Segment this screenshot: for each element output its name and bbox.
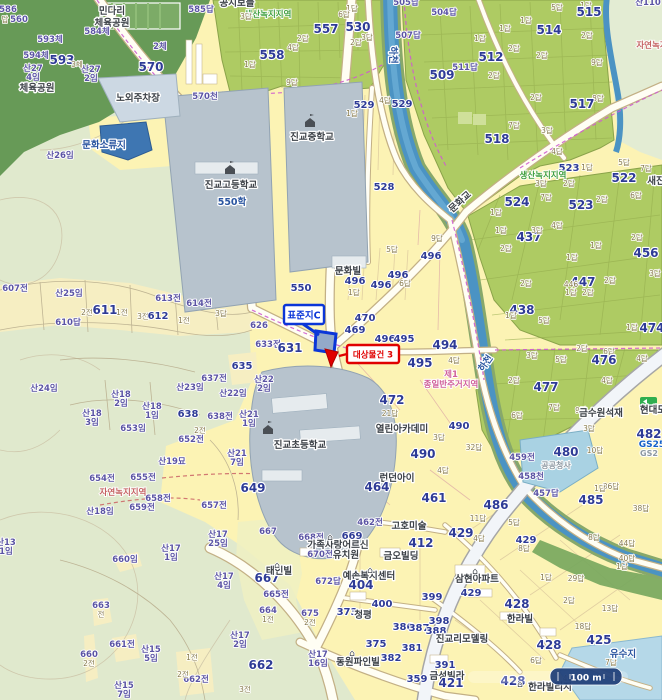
map-label: 458천	[518, 471, 544, 482]
map-label: 391	[435, 660, 456, 671]
map-label: 2전	[304, 617, 316, 627]
map-label: 민다리	[99, 5, 125, 17]
map-label: 4임	[26, 72, 40, 83]
map-label: 2답	[631, 232, 643, 242]
map-label: 585답	[188, 4, 214, 15]
map-label: 529	[392, 99, 413, 110]
map-label: 1답	[540, 572, 552, 582]
map-label: 613전	[155, 293, 181, 304]
map-label: 29답	[568, 573, 585, 583]
map-label: 9답	[431, 233, 443, 243]
map-label: 한라빌	[507, 613, 533, 625]
map-label: 고호미술	[392, 520, 427, 532]
map-label: 13답	[602, 603, 619, 613]
map-label: 3답	[361, 32, 373, 42]
map-label: 5임	[144, 653, 158, 664]
map-label: 1답	[566, 252, 578, 262]
map-label: 6답	[630, 190, 642, 200]
map-label: 495	[407, 356, 432, 370]
map-label: 472	[379, 393, 404, 407]
map-label: 399	[422, 592, 443, 603]
map-label: 6답	[399, 278, 411, 288]
map-label: 18답	[575, 621, 592, 631]
map-label: 2답	[297, 33, 309, 43]
map-label: 2답	[488, 70, 500, 80]
map-label: 자연녹지	[636, 40, 662, 51]
map-label: 496	[375, 334, 396, 345]
map-label: 2전	[83, 658, 95, 668]
map-label: 유치원	[333, 549, 359, 561]
map-label: 4답	[636, 353, 648, 363]
map-label: 670전	[307, 549, 333, 560]
map-label: 6답	[338, 9, 350, 19]
map-label: 462전	[357, 517, 383, 528]
map-label: 496	[345, 276, 366, 287]
map-label: 11답	[470, 513, 487, 523]
map-label: 2임	[114, 398, 128, 409]
map-label: 4답	[379, 95, 391, 105]
map-label: 열린아카데미	[376, 423, 428, 435]
map-label: 517	[569, 97, 594, 111]
map-label: 4답	[287, 42, 299, 52]
map-label: 522	[611, 171, 636, 185]
map-label: 2체	[153, 41, 167, 52]
map-label: 1답	[348, 287, 360, 297]
map-label: 496	[421, 251, 442, 262]
map-label: 1전	[186, 652, 198, 662]
map-label: 428	[536, 638, 561, 652]
map-label: 509	[429, 68, 454, 82]
map-label: 5답	[386, 244, 398, 254]
map-label: 금수원석재	[579, 407, 623, 419]
map-label: 469	[345, 325, 366, 336]
map-label: 7답	[540, 192, 552, 202]
map-label: 산26임	[46, 150, 73, 161]
map-label: 429	[448, 526, 473, 540]
map-label: 산110	[635, 0, 661, 8]
map-label: 6답	[530, 655, 542, 665]
map-label: 412	[408, 536, 433, 550]
map-label: 3답	[649, 268, 661, 278]
map-label: 7답	[508, 120, 520, 130]
scale-bar-label: 100 m	[570, 674, 601, 684]
map-label: 3답	[215, 308, 227, 318]
map-label: 507답	[395, 30, 421, 41]
map-label: 9답	[591, 57, 603, 67]
map-label: 현대모	[640, 404, 662, 416]
map-label: 655전	[130, 472, 156, 483]
map-label: 5답	[538, 315, 550, 325]
map-label: 2임	[257, 383, 271, 394]
map-label: 400	[372, 599, 393, 610]
map-label: 2답	[508, 43, 520, 53]
map-label: 4답	[551, 146, 563, 156]
map-label: 제1	[444, 369, 458, 380]
map-label: 1답	[520, 15, 532, 25]
map-label: 산23임	[176, 382, 203, 393]
map-label: 1답	[581, 162, 593, 172]
map-label: 512	[478, 50, 503, 64]
map-label: 금오빌딩	[384, 550, 419, 562]
map-label: 3답	[526, 350, 538, 360]
map-label: 614전	[186, 298, 212, 309]
map-label: 486	[483, 498, 508, 512]
map-label: 1임	[242, 418, 256, 429]
map-label: 550	[291, 283, 312, 294]
map-label: 653임	[120, 423, 146, 434]
map-label: 4답	[601, 375, 613, 385]
map-label: 1답	[495, 225, 507, 235]
map-label: 4임	[217, 580, 231, 591]
map-label: 665전	[263, 589, 289, 600]
map-label: 660임	[112, 554, 138, 565]
map-label: 1전	[116, 307, 128, 317]
map-label: 4답	[473, 533, 485, 543]
map-label: 515	[576, 5, 601, 19]
map-label: 5답	[508, 517, 520, 527]
map-label: 산18임	[86, 506, 113, 517]
map-label: 459전	[509, 452, 535, 463]
map-label: 8답	[518, 543, 530, 553]
map-label: 457답	[533, 488, 559, 499]
map-label: 새진	[647, 175, 662, 187]
map-label: 1답	[565, 287, 577, 297]
map-label: 2답	[536, 50, 548, 60]
map-label: 530	[345, 20, 370, 34]
map-label: 2답	[604, 275, 616, 285]
map-label: 496	[371, 280, 392, 291]
apartment-icon: ⌂	[274, 561, 280, 571]
map-label: 9답	[286, 77, 298, 87]
map-label: 514	[536, 23, 561, 37]
map-label: 5답	[555, 354, 567, 364]
map-label: 유수지	[610, 648, 636, 660]
map-label: 611	[92, 303, 117, 317]
map-label: 청평	[354, 609, 371, 621]
map-label: 7임	[117, 689, 131, 700]
map-label: 494	[432, 338, 457, 352]
map-label: 1전	[178, 315, 190, 325]
map-label: 전	[98, 609, 105, 619]
subject-property-label: 대상물건 3	[353, 350, 393, 361]
map-label: 25임	[208, 538, 228, 549]
map-label: 638전	[207, 411, 233, 422]
map-label: 1답	[626, 322, 638, 332]
map-label: 2답	[520, 278, 532, 288]
map-label: 2답	[576, 343, 588, 353]
map-label: 518	[484, 132, 509, 146]
map-label: GS2	[640, 449, 658, 458]
map-label: 노외주차장	[116, 92, 160, 104]
map-label: 3전	[239, 684, 251, 694]
map-label: 산19묘	[158, 456, 186, 467]
map-label: 524	[504, 195, 529, 209]
map-label: 586	[0, 5, 17, 15]
map-label: 558	[259, 48, 284, 62]
map-label: 649	[240, 481, 265, 495]
map-label: 652전	[178, 434, 204, 445]
map-label: 504답	[431, 7, 457, 18]
map-label: 3답	[433, 432, 445, 442]
map-label: 375	[366, 639, 387, 650]
map-label: 8답	[588, 532, 600, 542]
map-label: 2전	[194, 425, 206, 435]
map-label: 1답	[505, 310, 517, 320]
map-label: 485	[578, 493, 603, 507]
map-label: 470	[355, 313, 376, 324]
map-label: 429	[461, 588, 482, 599]
map-label: 657전	[201, 500, 227, 511]
map-label: 1답	[499, 23, 511, 33]
map-label: 2답	[596, 194, 608, 204]
map-label: 667	[259, 527, 277, 537]
map-label: 584체	[84, 26, 110, 37]
map-label: 421	[438, 676, 463, 690]
map-label: 2답	[563, 595, 575, 605]
map-label: 32답	[466, 442, 483, 452]
map-label: 612	[148, 311, 169, 322]
map-label: 공시보들	[220, 0, 255, 9]
map-label: 산24임	[30, 383, 57, 394]
map-label: 2답	[581, 30, 593, 40]
map-label: 하천	[387, 46, 399, 63]
map-label: 381	[402, 643, 423, 654]
map-label: 3답	[541, 125, 553, 135]
map-label: 560	[10, 15, 28, 25]
map-label: 진교고등학교	[205, 179, 258, 191]
map-label: 3임	[85, 417, 99, 428]
map-label: 3답	[535, 178, 547, 188]
map-label: 체육공원	[20, 82, 55, 94]
map-label: 2임	[84, 73, 98, 84]
map-label: 2답	[563, 178, 575, 188]
map-label: 635	[232, 361, 253, 372]
map-label: 672답	[315, 576, 341, 587]
map-label: 7임	[230, 457, 244, 468]
map-label: 511답	[452, 62, 478, 73]
map-label: 동원파인빌	[336, 656, 380, 668]
map-label: 428	[504, 597, 529, 611]
map-label: 480	[553, 445, 578, 459]
map-label: 659전	[129, 502, 155, 513]
map-label: 2답	[582, 287, 594, 297]
map-label: 570천	[192, 91, 218, 102]
map-label: 2답	[508, 375, 520, 385]
map-label: 1답	[244, 59, 256, 69]
map-label: 359	[407, 674, 428, 685]
map-label: 6답	[511, 410, 523, 420]
map-label: 2임	[233, 639, 247, 650]
map-label: 661전	[109, 639, 135, 650]
map-label: 490	[410, 447, 435, 461]
map-label: 570	[138, 60, 163, 74]
map-label: 4답	[551, 220, 563, 230]
map-label: 종일반주거지역	[424, 379, 479, 390]
map-label: 638	[178, 409, 199, 420]
map-label: 44답	[619, 538, 636, 548]
map-label: 7답	[548, 402, 560, 412]
map-label: 7답	[640, 163, 652, 173]
map-label: 답	[2, 14, 9, 24]
map-label: 404	[348, 578, 373, 592]
map-label: 진교초등학교	[274, 439, 327, 451]
map-label: 38답	[633, 503, 650, 513]
map-label: 산25임	[55, 288, 82, 299]
map-label: 2답	[350, 37, 362, 47]
map-label: 461	[421, 491, 446, 505]
map-label: 10답	[587, 445, 604, 455]
standard-parcel-label: 표준지C	[287, 310, 320, 322]
map-label: 654전	[89, 473, 115, 484]
map-label: 4답	[437, 465, 449, 475]
map-label: 382	[381, 653, 402, 664]
map-label: 495	[394, 334, 415, 345]
map-label: 607전	[2, 283, 28, 294]
cadastral-map: 민다리체육공원584체593체594체5933체산274임산272임체육공원2체…	[0, 0, 662, 700]
map-label: 5답	[551, 2, 563, 12]
map-label: 진교리모델링	[436, 633, 488, 645]
map-label: 진교중학교	[290, 131, 334, 143]
map-label: 505답	[393, 0, 419, 8]
map-label: 5답	[618, 157, 630, 167]
map-label: 476	[591, 353, 616, 367]
map-label: 528	[374, 182, 395, 193]
map-label: 2답	[500, 243, 512, 253]
map-label: 1임	[0, 546, 13, 557]
map-canvas: 민다리체육공원584체593체594체5933체산274임산272임체육공원2체…	[0, 0, 662, 700]
map-label: 637전	[201, 373, 227, 384]
map-label: 문화소류지	[82, 139, 126, 151]
map-label: 474	[639, 321, 662, 335]
map-label: 1답	[594, 483, 606, 493]
map-label: 4답	[448, 355, 460, 365]
map-label: 631	[277, 341, 302, 355]
map-label: 464	[364, 480, 389, 494]
map-label: 593체	[37, 34, 63, 45]
apartment-icon: ⌂	[472, 567, 478, 577]
map-label: 2답	[530, 92, 542, 102]
map-label: 482	[636, 427, 661, 441]
map-label: 477	[533, 380, 558, 394]
map-label: 3답	[583, 423, 595, 433]
map-label: 550학	[218, 196, 247, 208]
map-label: 594체	[23, 50, 49, 61]
map-label: 425	[586, 633, 611, 647]
map-label: 2전	[177, 669, 189, 679]
map-label: 산22임	[219, 388, 246, 399]
map-label: 1답	[490, 207, 502, 217]
map-label: 490	[449, 421, 470, 432]
map-label: 557	[313, 22, 338, 36]
map-label: 3답	[240, 11, 252, 21]
map-label: 610답	[55, 317, 81, 328]
map-label: 16임	[308, 658, 328, 669]
map-label: 523	[568, 198, 593, 212]
map-label: 1임	[145, 410, 159, 421]
apartment-icon: ⌂	[367, 566, 373, 576]
map-label: 1답	[590, 240, 602, 250]
apartment-icon: ⌂	[327, 533, 333, 543]
map-label: 662	[248, 658, 273, 672]
map-label: 21답	[382, 408, 399, 418]
map-label: 1답	[616, 561, 628, 571]
map-label: 1답	[346, 108, 358, 118]
map-label: 1임	[164, 552, 178, 563]
apartment-icon: ⌂	[349, 649, 355, 659]
map-label: 공공청사	[541, 460, 571, 470]
map-label: 자연녹지지역	[100, 487, 147, 498]
map-label: 456	[633, 246, 658, 260]
map-label: 3답	[531, 225, 543, 235]
map-label: 2전	[81, 307, 93, 317]
map-label: 626	[250, 321, 268, 331]
map-label: 1답	[474, 33, 486, 43]
map-label: 1전	[262, 614, 274, 624]
